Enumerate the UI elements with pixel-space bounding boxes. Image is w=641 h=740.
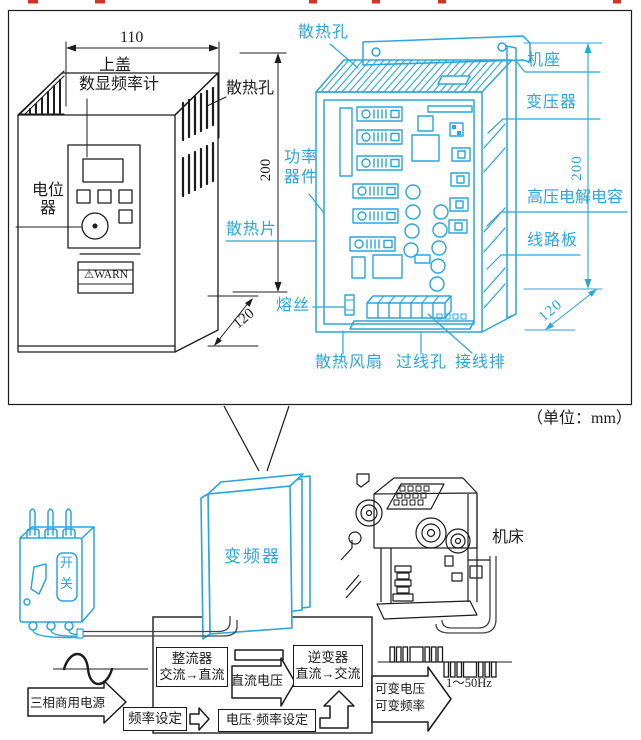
inverter-line1: 逆变器 <box>308 649 349 667</box>
figure-inverter-structure: 110 上盖 数显频率计 散热孔 电位 器 ⚠WARN 200 120 散热孔 … <box>0 0 641 740</box>
digital-freq-meter-label: 数显频率计 <box>79 76 159 94</box>
freq-setting-label: 频率设定 <box>128 710 182 728</box>
switch-drawing <box>20 509 94 638</box>
freq-setting-box: 频率设定 <box>123 707 187 731</box>
variable-frequency-label: 可变频率 <box>374 698 426 714</box>
potentiometer-label-2: 器 <box>30 200 66 218</box>
terminal-block-label: 接线排 <box>455 354 506 372</box>
freq-range-label: 1～50Hz <box>446 677 492 691</box>
rectifier-box: 整流器 交流→直流 <box>156 647 228 687</box>
switch-label-1: 开 <box>60 556 73 570</box>
setting-arrow-shape <box>190 708 209 730</box>
potentiometer-label-1: 电位 <box>30 182 66 200</box>
pwm-waveform <box>378 647 512 677</box>
transformer-label: 变压器 <box>526 94 577 112</box>
chassis-label: 机座 <box>527 52 561 70</box>
print-registration-marks <box>28 0 621 4</box>
dim-200-cyan <box>524 43 602 289</box>
vf-setting-label: 电压·频率设定 <box>226 712 308 729</box>
top-cover-label: 上盖 <box>99 57 131 75</box>
rectifier-line2: 交流→直流 <box>159 667 224 684</box>
inverter-line2: 直流→交流 <box>295 666 360 683</box>
callout-funnel <box>224 406 289 471</box>
machine-tool-label: 机床 <box>492 529 524 547</box>
power-devices-label-2: 器件 <box>284 169 318 187</box>
hv-capacitor-label: 高压电解电容 <box>527 189 623 207</box>
vent-holes-label-cyan: 散热孔 <box>298 24 349 42</box>
dim-110-label: 110 <box>120 29 143 47</box>
variable-voltage-label: 可变电压 <box>374 681 426 697</box>
warn-plate-label: ⚠WARN <box>80 269 132 282</box>
inverter-box: 逆变器 直流→交流 <box>293 645 363 687</box>
heatsink-label: 散热片 <box>226 221 277 239</box>
rectifier-line1: 整流器 <box>172 650 213 668</box>
bent-arrow-shape <box>320 691 354 728</box>
inverter-unit-label: 变频器 <box>224 548 281 567</box>
switch-label-2: 关 <box>60 577 73 591</box>
wire-hole-label: 过线孔 <box>396 354 447 372</box>
cooling-fan-label: 散热风扇 <box>315 354 383 372</box>
three-phase-source-label: 三相商用电源 <box>30 695 104 711</box>
unit-note: （单位：mm） <box>527 410 632 428</box>
vent-holes-label-black: 散热孔 <box>226 80 274 98</box>
vf-setting-box: 电压·频率设定 <box>218 709 316 732</box>
pcb-components <box>340 106 472 318</box>
dc-voltage-label: 直流电压 <box>230 673 284 690</box>
power-devices-label-1: 功率 <box>284 149 318 167</box>
dim-200-black-label: 200 <box>258 159 275 182</box>
sine-wave <box>53 654 148 684</box>
dc-bus-bar <box>235 650 283 660</box>
fuse-label: 熔丝 <box>276 297 310 315</box>
machine-tool-drawing <box>341 474 490 619</box>
dim-200-cyan-label: 200 <box>569 155 586 181</box>
circuit-board-label: 线路板 <box>527 232 578 250</box>
